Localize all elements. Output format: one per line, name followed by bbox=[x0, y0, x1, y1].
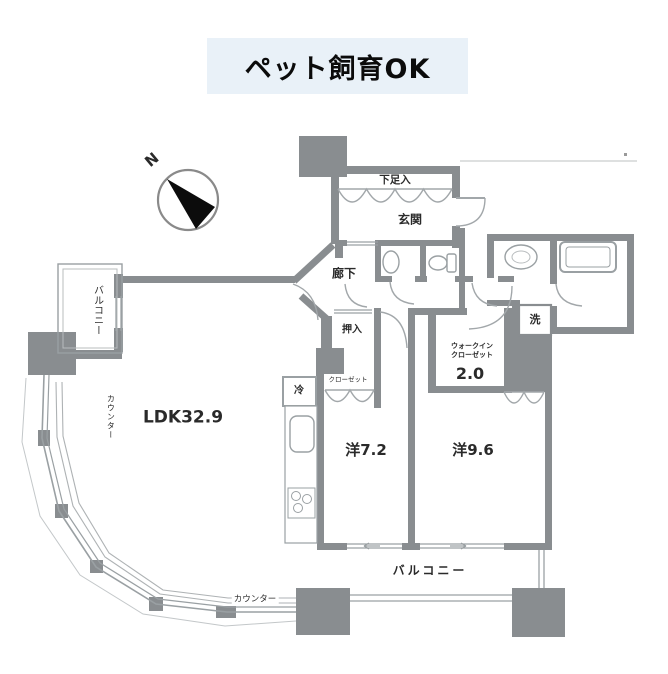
label-closet: クローゼット bbox=[329, 376, 368, 383]
label-wic-line2: クローゼット bbox=[451, 352, 493, 360]
label-western-room-1: 洋7.2 bbox=[345, 442, 387, 459]
floor-plan-canvas bbox=[0, 0, 668, 674]
diagonal-walls bbox=[294, 245, 333, 321]
label-counter-bottom: カウンター bbox=[232, 595, 279, 604]
thin-lines bbox=[22, 161, 637, 626]
label-corridor: 廊下 bbox=[332, 267, 356, 280]
label-shoe-cabinet: 下足入 bbox=[379, 175, 411, 187]
toilet-bowl bbox=[429, 256, 447, 270]
label-wic-size: 2.0 bbox=[456, 365, 484, 383]
label-ldk: LDK32.9 bbox=[143, 409, 223, 428]
label-counter-left: カウンター bbox=[106, 395, 115, 440]
walls bbox=[28, 136, 634, 637]
label-balcony-bottom: バルコニー bbox=[393, 564, 468, 577]
label-balcony-left: バルコニー bbox=[92, 285, 103, 335]
label-wic-line1: ウォークイン bbox=[451, 343, 493, 351]
kitchen-sink bbox=[290, 416, 314, 452]
basin bbox=[383, 251, 399, 273]
label-oshiire: 押入 bbox=[342, 325, 362, 336]
pet-ok-banner: ペット飼育OK bbox=[207, 38, 468, 94]
label-entrance: 玄関 bbox=[398, 213, 422, 226]
stove bbox=[288, 488, 315, 518]
toilet-tank bbox=[447, 254, 456, 272]
label-western-room-2: 洋9.6 bbox=[452, 442, 494, 459]
floor-plan-page: ペット飼育OK N 下足入 玄関 廊下 押入 クローゼット 冷 洗 ウォークイン… bbox=[0, 0, 668, 674]
label-refrigerator: 冷 bbox=[294, 386, 304, 397]
compass-icon bbox=[158, 170, 218, 230]
label-laundry: 洗 bbox=[530, 314, 541, 326]
